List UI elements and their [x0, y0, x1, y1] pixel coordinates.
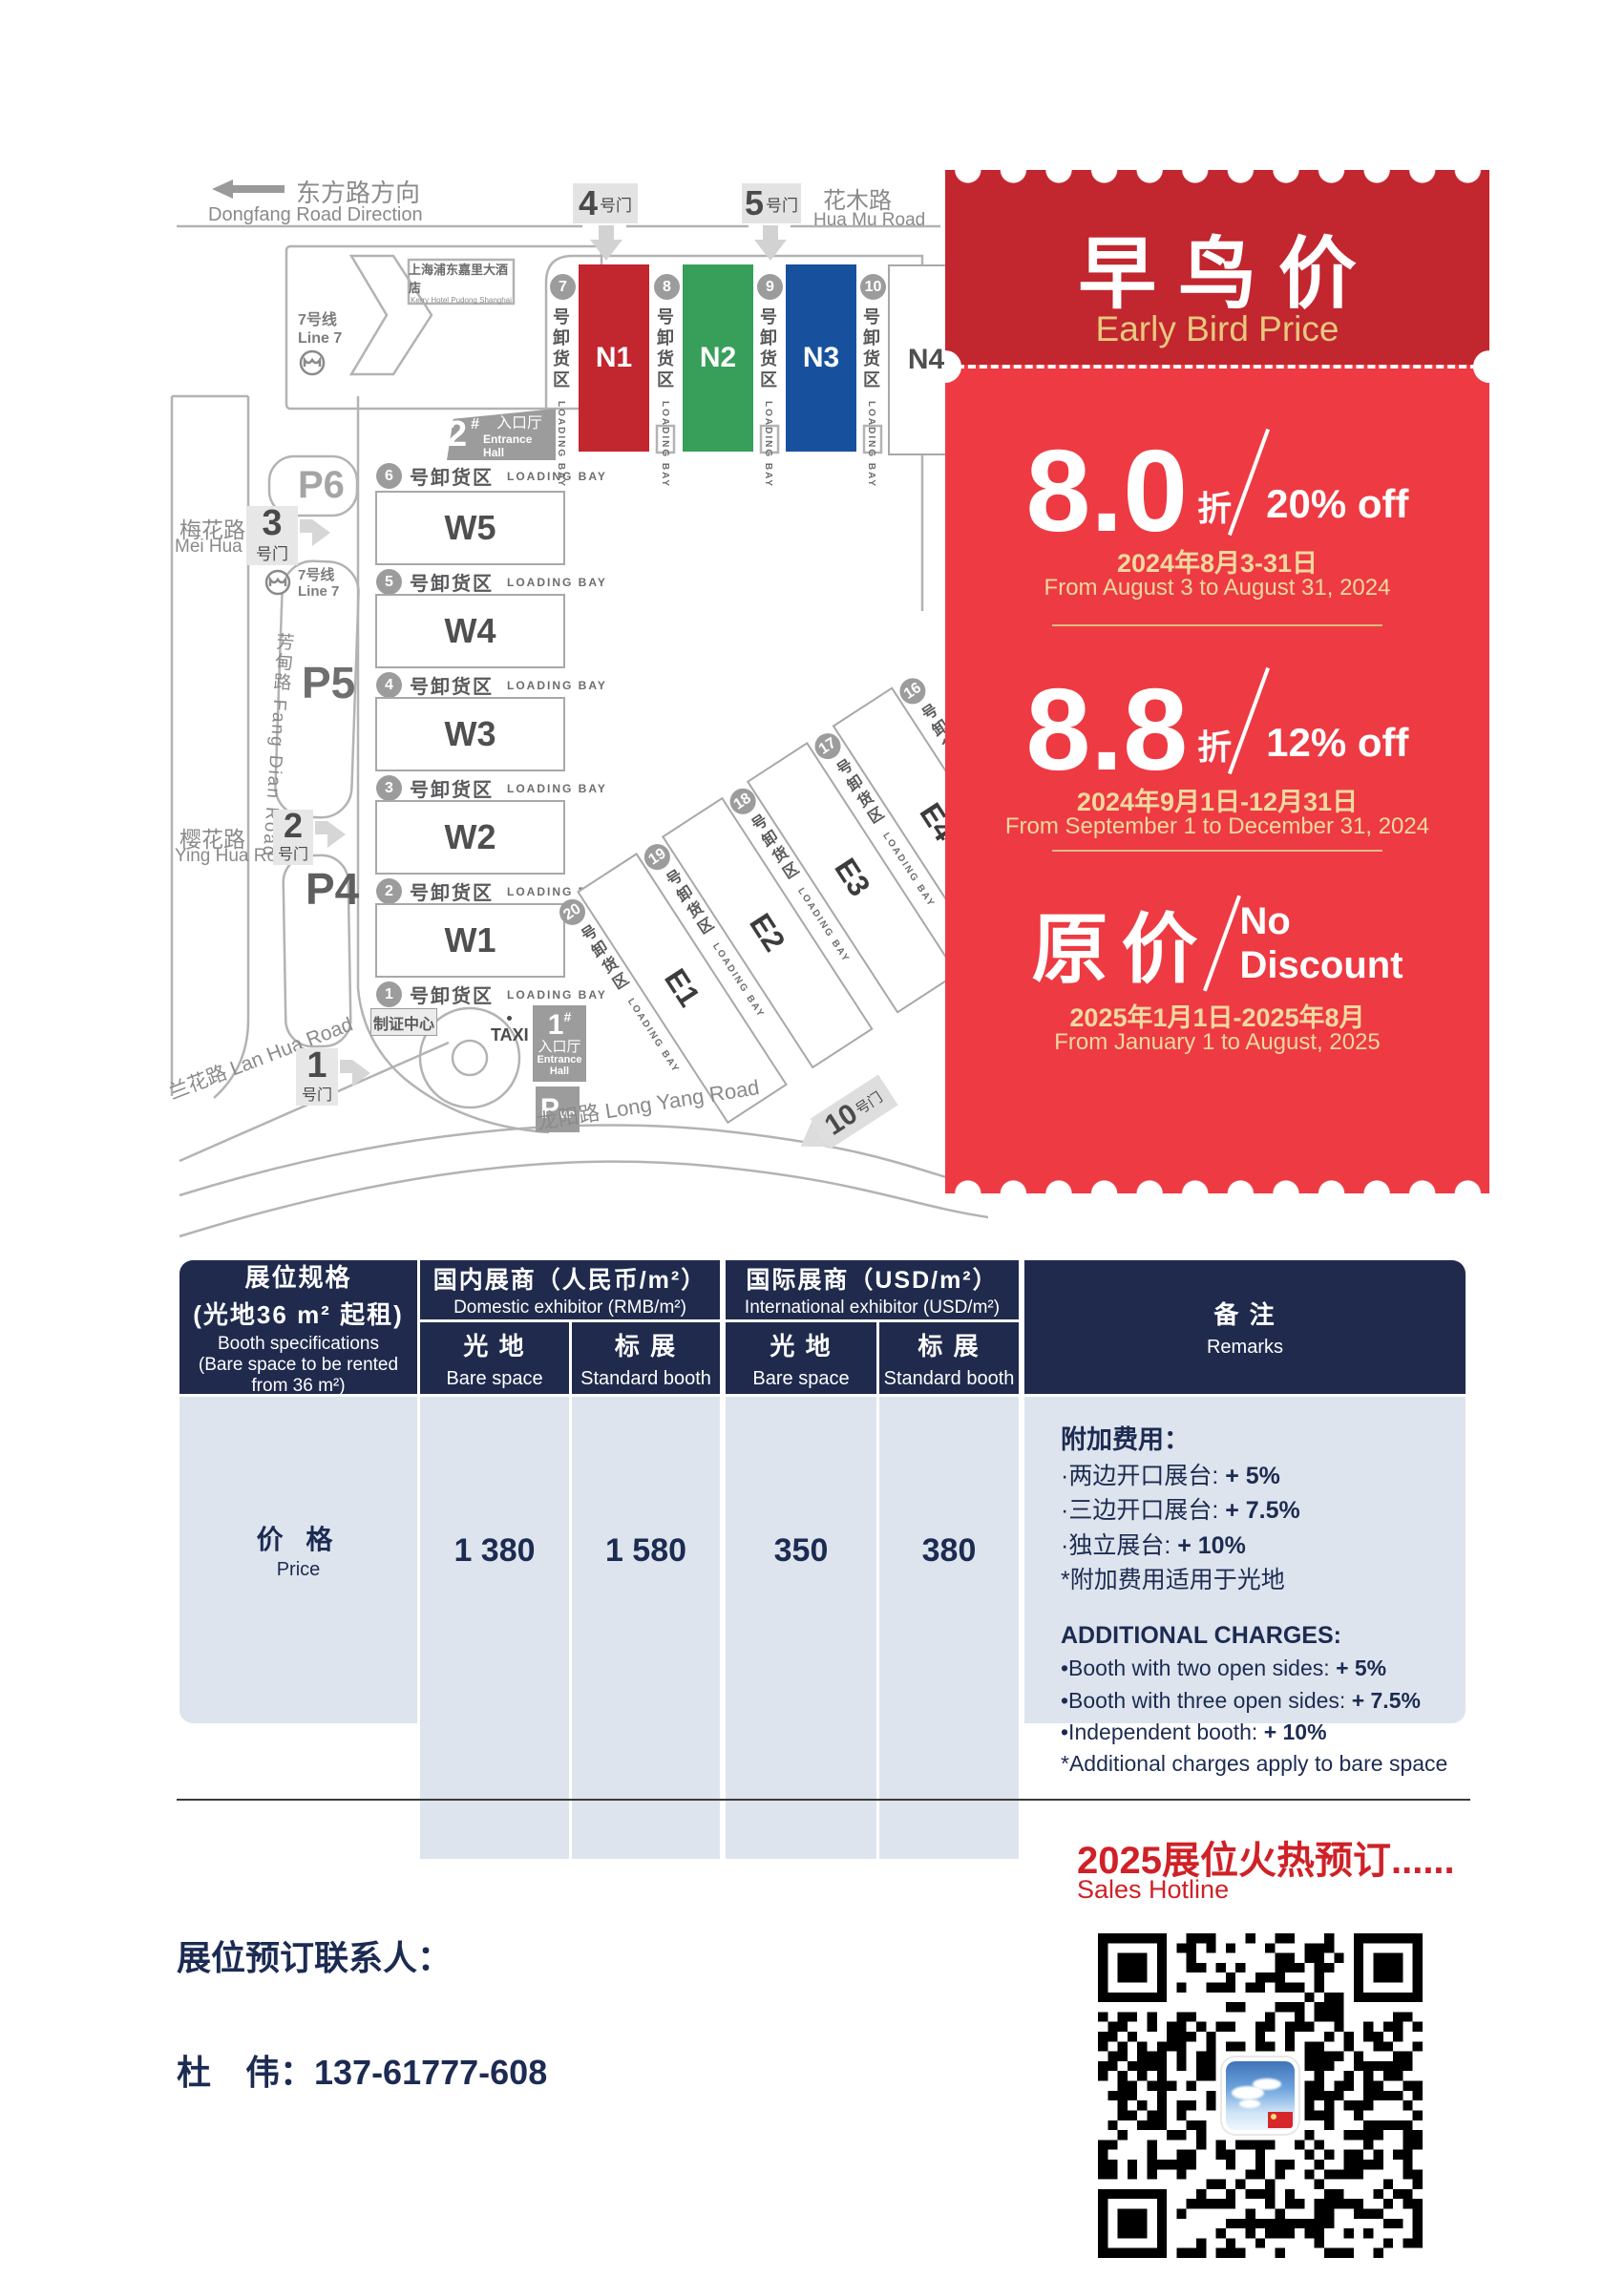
gate-2: 2 号门	[273, 810, 313, 865]
spec-l5: from 36 m²)	[251, 1376, 345, 1397]
gate-4-arrow-icon	[590, 225, 622, 261]
coupon-scallop-bottom	[945, 1165, 1489, 1193]
gate-3-arrow-icon	[300, 519, 330, 546]
th-group-intl: 国际展商（USD/m²） International exhibitor (US…	[726, 1260, 1019, 1319]
tier1-unit: 折	[1197, 481, 1232, 531]
tier3-row: 原价 No Discount	[945, 888, 1489, 999]
gate-4-suffix: 号门	[600, 192, 632, 216]
hall-n2: N2	[683, 264, 753, 452]
gate-3: 3 号门	[246, 506, 298, 565]
remarks-cn-item-3: ·独立展台: + 10%	[1061, 1529, 1466, 1563]
metro-en-2: Line 7	[298, 583, 339, 600]
intl-bare-en: Bare space	[752, 1368, 849, 1390]
metro-logo-icon-2	[264, 569, 291, 596]
w-bay-5-en: LOADING BAY	[507, 576, 607, 589]
n-bay-9-en: LOADING BAY	[763, 401, 773, 488]
gate-4-number: 4	[579, 183, 598, 223]
w-bay-6: 6号卸货区LOADING BAY	[376, 462, 607, 490]
spec-l1: 展位规格	[244, 1258, 351, 1294]
contact-label: 展位预订联系人：	[177, 1930, 452, 1980]
n-bay-8-circle: 8	[654, 274, 680, 300]
td-price-label: 价 格 Price	[179, 1397, 417, 1723]
w-bay-4: 4号卸货区LOADING BAY	[376, 671, 607, 699]
entrance-1-hash: #	[563, 1009, 571, 1024]
w-bay-6-en: LOADING BAY	[507, 470, 607, 483]
n-bay-9-circle: 9	[757, 274, 783, 300]
tier3-off-line1: No	[1239, 899, 1403, 943]
remarks-cn-item-2: ·三边开口展台: + 7.5%	[1061, 1493, 1466, 1528]
gate-5-number: 5	[745, 183, 764, 223]
tier2-unit: 折	[1197, 720, 1232, 770]
w-bay-3-circle: 3	[376, 775, 402, 801]
w-bay-6-circle: 6	[376, 463, 402, 489]
remarks-en-item-3: •Independent booth: + 10%	[1061, 1717, 1466, 1748]
td-intl-bare-value: 350	[726, 1397, 876, 1859]
spec-l2: (光地36 m² 起租)	[193, 1296, 403, 1331]
remarks-header-en: Remarks	[1207, 1337, 1283, 1359]
entrance-1-cn: 入口厅	[538, 1040, 580, 1055]
kerry-hotel-en: Kerry Hotel Pudong Shanghai	[411, 296, 512, 305]
hall-w3: W3	[375, 697, 565, 771]
metro-cn-1: 7号线	[298, 311, 342, 329]
gate-5: 5 号门	[742, 183, 801, 223]
badge-center-label: 制证中心	[370, 1008, 437, 1036]
hotline-subtitle: Sales Hotline	[1077, 1875, 1229, 1905]
w-bay-5-circle: 5	[376, 569, 402, 595]
gate-3-number: 3	[262, 507, 282, 539]
n-bay-10-en: LOADING BAY	[866, 401, 876, 488]
n-bay-7-cn: 号卸货区	[551, 307, 570, 391]
td-dom-std-value: 1 580	[572, 1397, 720, 1859]
gate-2-number: 2	[284, 811, 303, 841]
dom-std-en: Standard booth	[580, 1368, 711, 1390]
group-domestic-en: Domestic exhibitor (RMB/m²)	[453, 1297, 686, 1318]
w-bay-3: 3号卸货区LOADING BAY	[376, 774, 607, 802]
w-bay-4-en: LOADING BAY	[507, 679, 607, 692]
entrance-1-en: Entrance Hall	[533, 1055, 586, 1077]
flag-icon	[1268, 2112, 1293, 2128]
w-bay-1-circle: 1	[376, 981, 402, 1007]
th-group-domestic: 国内展商（人民币/m²） Domestic exhibitor (RMB/m²)	[420, 1260, 720, 1319]
gate-2-suffix: 号门	[278, 841, 308, 864]
gate-3-suffix: 号门	[256, 540, 288, 564]
taxi-label: TAXI	[491, 1025, 529, 1045]
tier2-date-en: From September 1 to December 31, 2024	[945, 813, 1489, 840]
tier3-label: 原价	[1031, 888, 1211, 999]
pricing-table: 展位规格 (光地36 m² 起租) Booth specifications (…	[179, 1260, 1466, 1723]
price-label-en: Price	[179, 1559, 417, 1581]
remarks-cn-title: 附加费用：	[1061, 1422, 1466, 1459]
footer-divider	[177, 1799, 1470, 1801]
remarks-en-item-4: *Additional charges apply to bare space	[1061, 1748, 1466, 1780]
entrance-1-number: 1	[548, 1009, 564, 1041]
th-intl-std: 标 展 Standard booth	[879, 1322, 1019, 1394]
w-bay-1: 1号卸货区LOADING BAY	[376, 981, 607, 1008]
tier2-row: 8.8 折 12% off	[945, 664, 1489, 777]
intl-std-en: Standard booth	[884, 1368, 1015, 1390]
metro-logo-icon-1	[299, 349, 326, 376]
parking-p6-label: P6	[298, 464, 345, 507]
n-bay-10-cn: 号卸货区	[861, 307, 880, 391]
gate-5-arrow-icon	[754, 225, 787, 261]
dom-bare-cn: 光 地	[463, 1327, 525, 1362]
remarks-cn-item-4: *附加费用适用于光地	[1061, 1563, 1466, 1597]
qr-center-logo	[1220, 2056, 1300, 2136]
w-bay-1-en: LOADING BAY	[507, 988, 607, 1002]
remarks-header-cn: 备 注	[1213, 1296, 1276, 1331]
w-bay-3-cn: 号卸货区	[410, 774, 494, 802]
w-bay-6-cn: 号卸货区	[410, 462, 494, 490]
n-bay-7-circle: 7	[550, 274, 576, 300]
remarks-en-item-1: •Booth with two open sides: + 5%	[1061, 1653, 1466, 1684]
remarks-en-title: ADDITIONAL CHARGES:	[1061, 1618, 1466, 1653]
n-bay-8-label: 号卸货区LOADING BAY	[656, 307, 673, 556]
w-bay-1-cn: 号卸货区	[410, 981, 494, 1008]
coupon-title-en: Early Bird Price	[945, 309, 1489, 349]
th-remarks: 备 注 Remarks	[1024, 1260, 1466, 1394]
metro-en-1: Line 7	[298, 329, 342, 348]
td-intl-std-value: 380	[879, 1397, 1019, 1859]
gate-1-arrow-icon	[340, 1060, 370, 1086]
w-bay-2-circle: 2	[376, 878, 402, 904]
n-bay-9-label: 号卸货区LOADING BAY	[759, 307, 776, 556]
spec-l4: (Bare space to be rented	[199, 1355, 398, 1376]
qr-code	[1098, 1933, 1423, 2258]
intl-bare-cn: 光 地	[770, 1327, 832, 1362]
tier-divider-1	[1052, 624, 1382, 626]
tier1-discount: 8.0	[1026, 443, 1189, 538]
td-remarks: 附加费用： ·两边开口展台: + 5% ·三边开口展台: + 7.5% ·独立展…	[1024, 1397, 1466, 1723]
tier1-off: 20% off	[1266, 481, 1408, 527]
group-domestic-cn: 国内展商（人民币/m²）	[433, 1261, 707, 1296]
price-label-cn: 价 格	[179, 1397, 417, 1557]
coupon-dash-separator	[945, 365, 1489, 369]
gate-4: 4 号门	[573, 183, 638, 223]
entrance-hall-1: 1# 入口厅 Entrance Hall	[533, 1005, 586, 1082]
th-spec: 展位规格 (光地36 m² 起租) Booth specifications (…	[179, 1260, 417, 1394]
tier2-slash	[1228, 667, 1270, 774]
metro-cn-2: 7号线	[298, 567, 339, 583]
hall-w2: W2	[375, 800, 565, 875]
n-bay-10-circle: 10	[860, 274, 886, 300]
tier1-row: 8.0 折 20% off	[945, 426, 1489, 538]
gate-2-arrow-icon	[315, 821, 346, 848]
td-dom-bare-value: 1 380	[420, 1397, 569, 1859]
th-intl-bare: 光 地 Bare space	[726, 1322, 876, 1394]
early-bird-coupon: 早 鸟 价 Early Bird Price 8.0 折 20% off 202…	[945, 170, 1489, 1193]
gate-1: 1 号门	[296, 1048, 338, 1106]
group-intl-en: International exhibitor (USD/m²)	[745, 1297, 1000, 1318]
tier1-slash	[1228, 429, 1270, 536]
tier3-off-line2: Discount	[1239, 943, 1403, 987]
dom-std-cn: 标 展	[615, 1327, 677, 1362]
entrance-2-en: Entrance Hall	[483, 432, 556, 459]
remarks-en-item-2: •Booth with three open sides: + 7.5%	[1061, 1685, 1466, 1717]
th-dom-std: 标 展 Standard booth	[572, 1322, 720, 1394]
tier1-date-en: From August 3 to August 31, 2024	[945, 575, 1489, 601]
flyer-page: 东方路方向 Dongfang Road Direction 4 号门 5 号门 …	[0, 0, 1624, 2278]
kerry-hotel-label: 上海浦东嘉里大酒店 Kerry Hotel Pudong Shanghai	[409, 260, 514, 304]
group-intl-cn: 国际展商（USD/m²）	[746, 1261, 998, 1296]
parking-p5-label: P5	[302, 657, 355, 708]
n-bay-8-cn: 号卸货区	[655, 307, 674, 391]
w-bay-4-circle: 4	[376, 672, 402, 698]
th-dom-bare: 光 地 Bare space	[420, 1322, 569, 1394]
coupon-title-cn: 早 鸟 价	[945, 210, 1489, 324]
entrance-2-hash: #	[471, 416, 479, 433]
dom-bare-en: Bare space	[446, 1368, 542, 1390]
w-bay-5: 5号卸货区LOADING BAY	[376, 568, 607, 596]
tier3-date-en: From January 1 to August, 2025	[945, 1029, 1489, 1056]
hall-n1: N1	[579, 264, 649, 452]
contact-info: 杜 伟：137-61777-608	[177, 2045, 547, 2095]
n-bay-8-en: LOADING BAY	[660, 401, 670, 488]
dongfang-arrow-icon	[212, 179, 285, 199]
w-bay-4-cn: 号卸货区	[410, 671, 494, 699]
huamu-road-label-en: Hua Mu Road	[813, 210, 925, 231]
w-bay-2-cn: 号卸货区	[410, 877, 494, 905]
gate-1-suffix: 号门	[302, 1082, 332, 1105]
n-bay-9-cn: 号卸货区	[758, 307, 777, 391]
taxi-dot	[507, 1016, 512, 1021]
parking-p4-label: P4	[306, 863, 359, 915]
hall-w5: W5	[375, 491, 565, 565]
hall-w4: W4	[375, 594, 565, 668]
metro-line7-label-1: 7号线 Line 7	[298, 311, 342, 348]
hall-n3: N3	[786, 264, 856, 452]
dongfang-road-label-en: Dongfang Road Direction	[208, 204, 423, 226]
intl-std-cn: 标 展	[917, 1327, 980, 1362]
gate-1-number: 1	[306, 1049, 327, 1082]
tier-divider-2	[1052, 850, 1382, 852]
spec-l3: Booth specifications	[218, 1334, 379, 1355]
remarks-cn-item-1: ·两边开口展台: + 5%	[1061, 1459, 1466, 1493]
coupon-scallop-top	[945, 170, 1489, 199]
n-bay-10-label: 号卸货区LOADING BAY	[862, 307, 879, 556]
gate-5-suffix: 号门	[766, 192, 798, 216]
tier2-off: 12% off	[1266, 720, 1408, 766]
hall-w1: W1	[375, 903, 565, 978]
tier2-discount: 8.8	[1026, 682, 1189, 777]
w-bay-3-en: LOADING BAY	[507, 782, 607, 795]
w-bay-5-cn: 号卸货区	[410, 568, 494, 596]
kerry-hotel-cn: 上海浦东嘉里大酒店	[409, 260, 514, 296]
metro-line7-label-2: 7号线 Line 7	[298, 567, 339, 601]
